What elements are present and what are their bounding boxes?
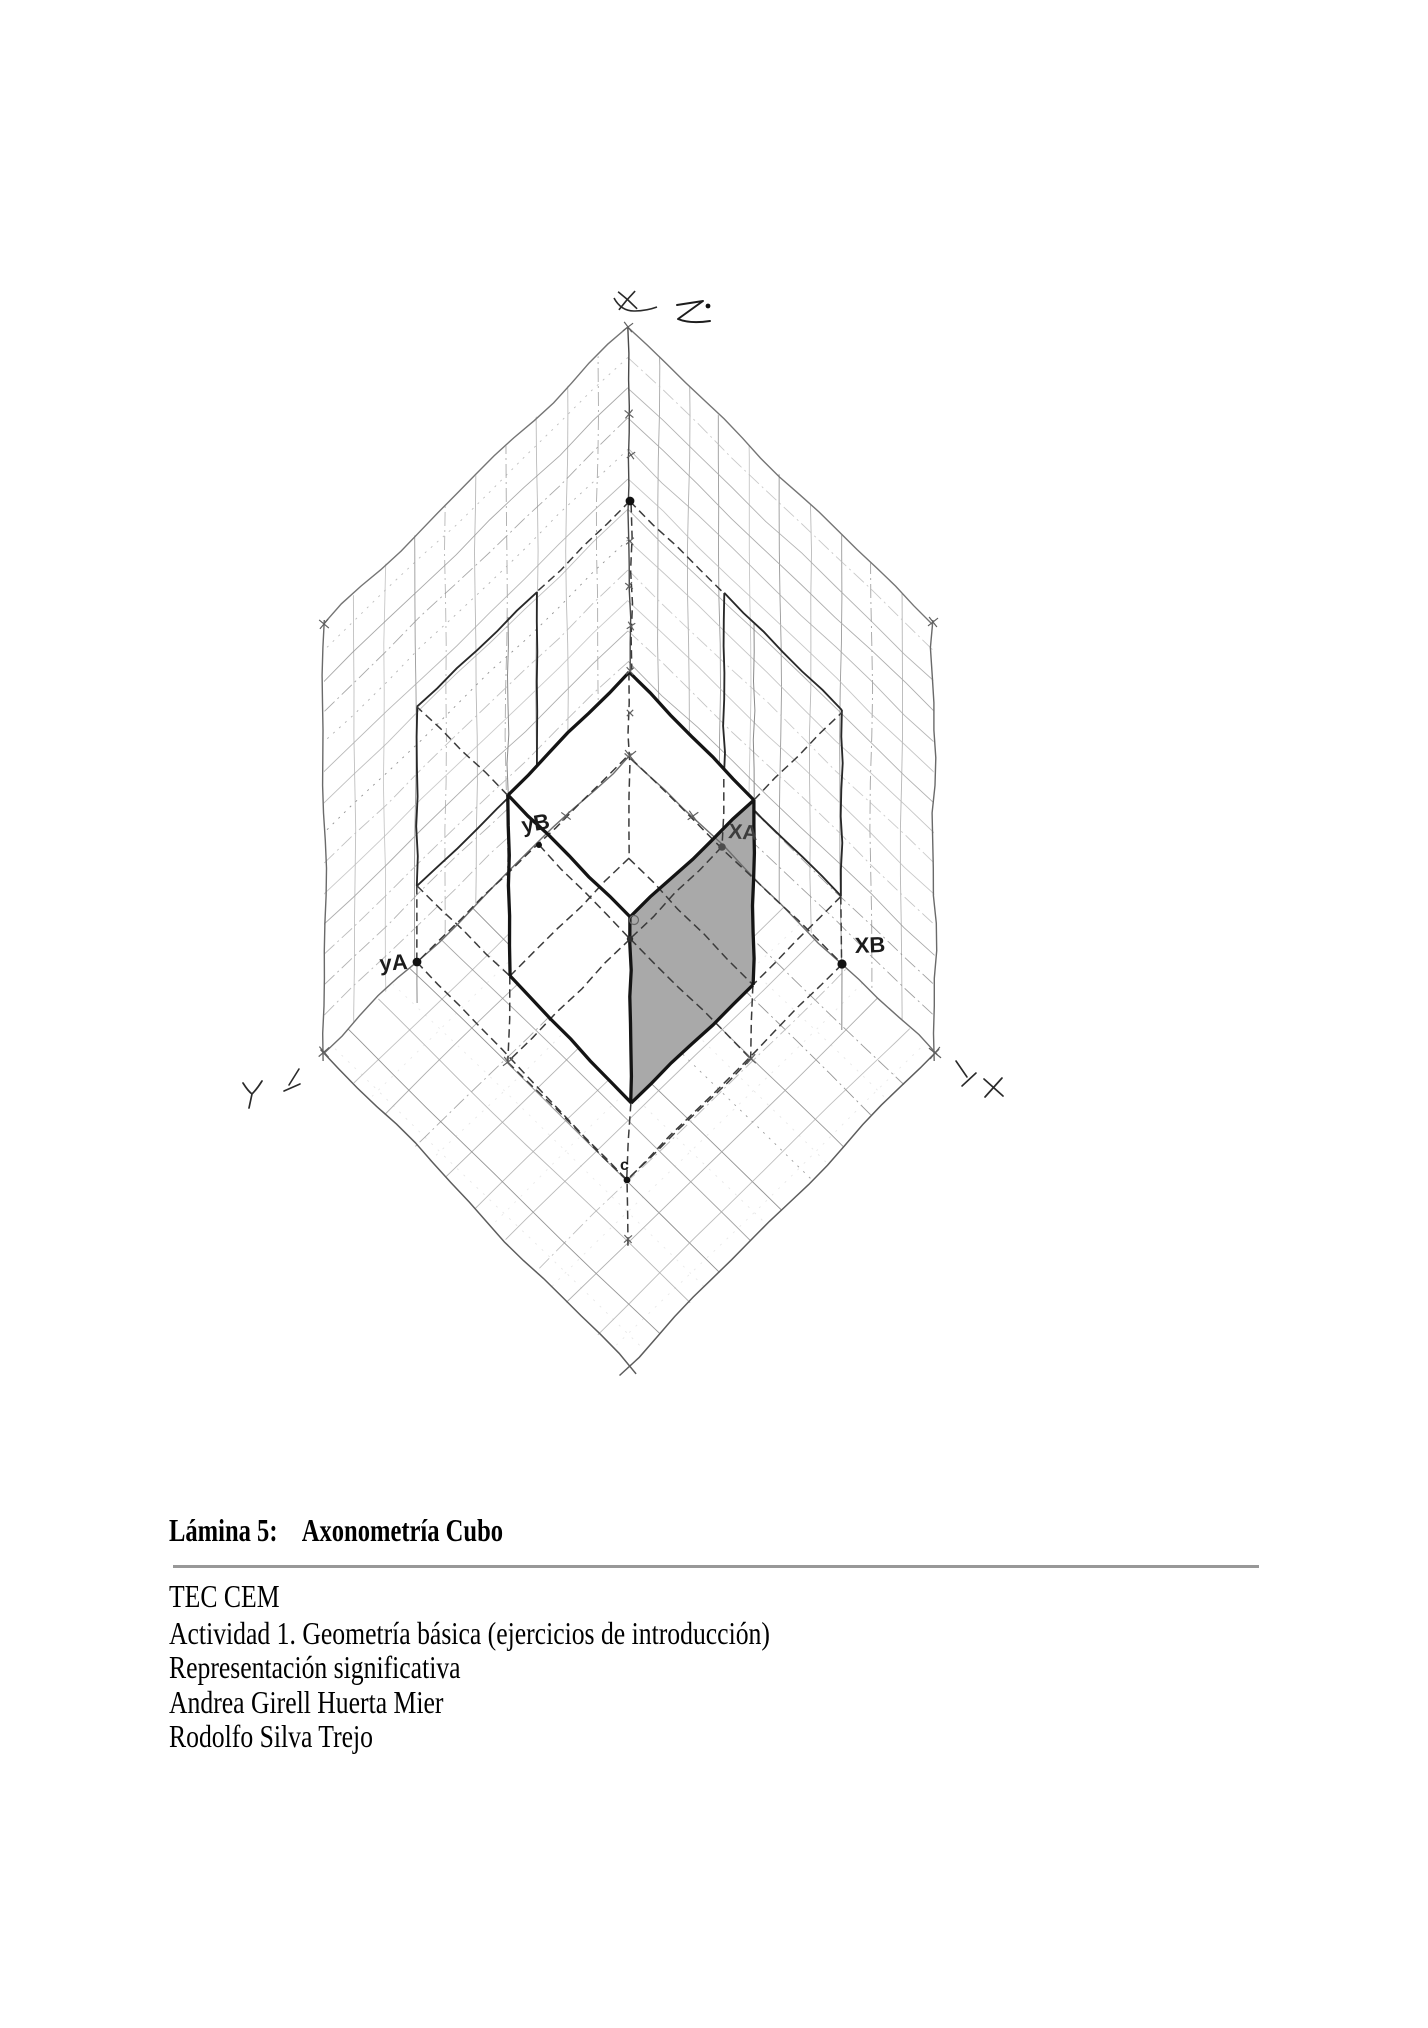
svg-text:XB: XB	[854, 932, 885, 958]
svg-text:XA: XA	[728, 820, 759, 845]
svg-text:c: c	[620, 1157, 629, 1174]
svg-text:yA: yA	[379, 949, 409, 976]
svg-text:yB: yB	[520, 808, 552, 838]
